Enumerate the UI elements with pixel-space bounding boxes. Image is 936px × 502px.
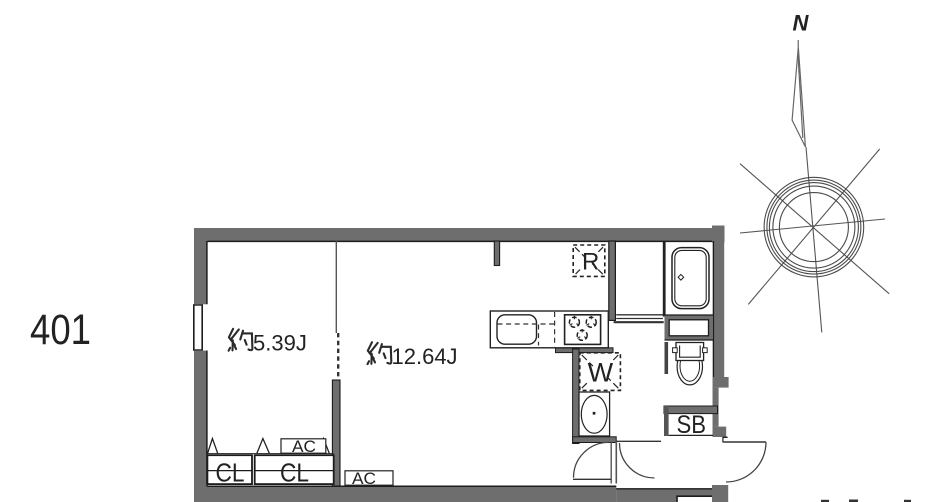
svg-text:AC: AC xyxy=(292,438,316,456)
svg-text:R: R xyxy=(582,249,599,276)
svg-text:CL: CL xyxy=(216,458,245,488)
svg-text:12.64J: 12.64J xyxy=(392,344,458,369)
svg-text:CL: CL xyxy=(280,458,309,488)
svg-text:W: W xyxy=(588,357,614,387)
svg-text:5.39J: 5.39J xyxy=(253,331,307,356)
svg-text:401: 401 xyxy=(30,306,91,354)
svg-text:AC: AC xyxy=(352,470,376,488)
svg-text:N: N xyxy=(793,11,810,36)
